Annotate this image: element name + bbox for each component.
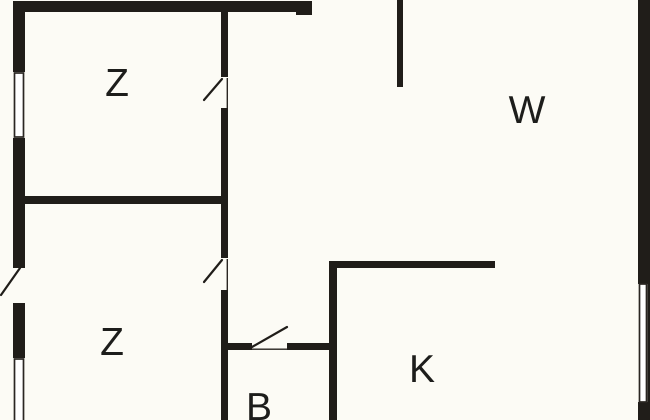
wall-segment: [287, 343, 329, 350]
wall-segment: [329, 261, 495, 268]
wall-segment: [397, 0, 403, 87]
wall-segment: [228, 343, 252, 350]
door-jamb-line: [227, 259, 228, 290]
wall-segment: [13, 196, 228, 204]
wall-segment: [13, 1, 25, 72]
window-symbol: [15, 359, 24, 420]
window-symbol: [640, 284, 647, 402]
wall-segment: [329, 261, 337, 420]
wall-segment: [221, 290, 228, 420]
window-symbol: [15, 73, 24, 137]
wall-segment: [13, 1, 312, 12]
room-label-living-room: W: [509, 89, 546, 132]
floor-plan-canvas: Z Z W K B: [0, 0, 650, 420]
room-label-bedroom-lower: Z: [100, 321, 124, 364]
floor-plan-viewer: Z Z W K B: [0, 0, 650, 420]
wall-segment: [221, 108, 228, 258]
room-label-bathroom: B: [246, 386, 272, 420]
wall-segment: [13, 303, 25, 358]
door-jamb-line: [227, 78, 228, 108]
door-jamb-line: [252, 349, 287, 350]
wall-segment: [638, 402, 650, 420]
room-label-kitchen: K: [409, 348, 435, 391]
plan-background: [0, 0, 650, 420]
wall-segment: [296, 11, 312, 15]
room-label-bedroom-upper: Z: [105, 62, 129, 105]
wall-segment: [638, 0, 650, 284]
wall-segment: [221, 11, 228, 77]
